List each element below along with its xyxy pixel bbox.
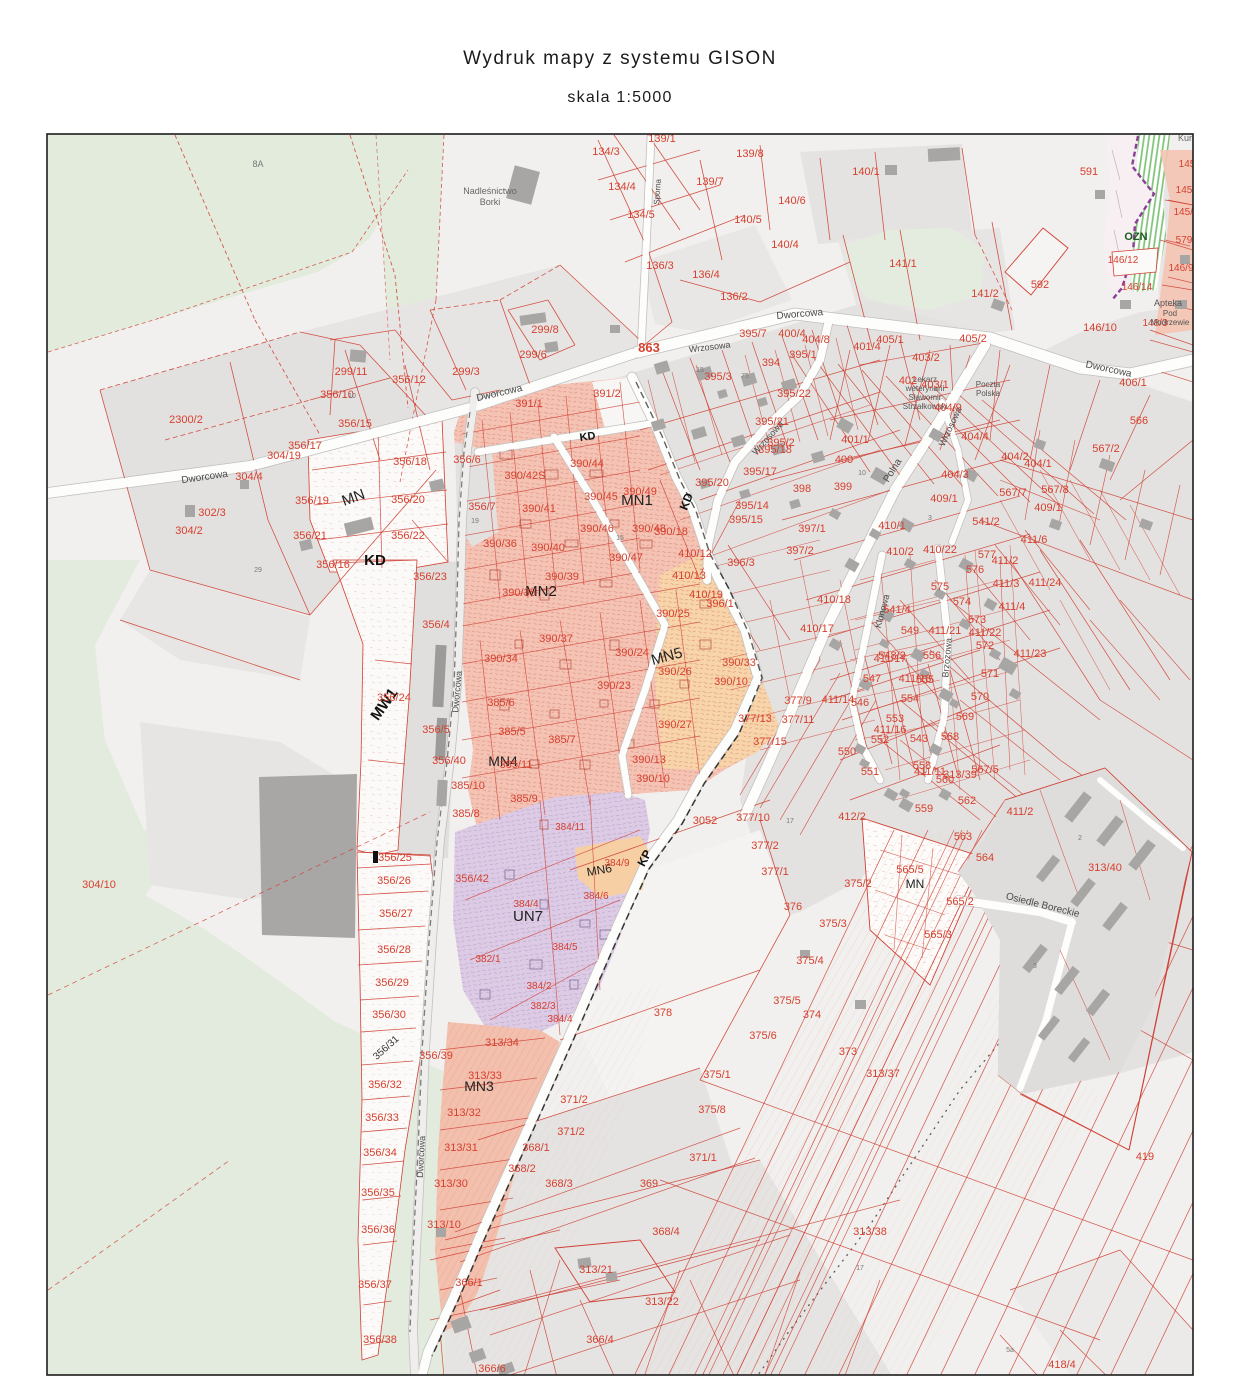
svg-text:375/5: 375/5 xyxy=(773,995,801,1007)
svg-text:402: 402 xyxy=(899,375,917,387)
svg-text:567/2: 567/2 xyxy=(1092,443,1120,455)
svg-text:377/9: 377/9 xyxy=(784,695,812,707)
svg-text:567/7: 567/7 xyxy=(999,487,1027,499)
svg-text:438: 438 xyxy=(1099,1374,1117,1386)
svg-text:406/1: 406/1 xyxy=(1119,377,1147,389)
svg-text:395/14: 395/14 xyxy=(735,500,769,512)
svg-text:313/33: 313/33 xyxy=(468,1070,502,1082)
svg-text:411/11: 411/11 xyxy=(914,766,946,778)
svg-text:356/17: 356/17 xyxy=(288,440,322,452)
svg-text:390/13: 390/13 xyxy=(632,754,666,766)
svg-text:313/31: 313/31 xyxy=(444,1142,478,1154)
svg-text:390/45: 390/45 xyxy=(584,491,618,503)
svg-text:Sławomir: Sławomir xyxy=(909,393,942,402)
svg-text:139/8: 139/8 xyxy=(736,148,764,160)
svg-text:19: 19 xyxy=(471,518,479,525)
svg-text:3052: 3052 xyxy=(693,815,717,827)
svg-text:29: 29 xyxy=(254,567,262,574)
svg-text:390/44: 390/44 xyxy=(570,458,604,470)
svg-text:563: 563 xyxy=(954,831,972,843)
svg-text:412/2: 412/2 xyxy=(838,811,866,823)
svg-text:390/10: 390/10 xyxy=(636,773,670,785)
svg-text:366/6: 366/6 xyxy=(478,1363,506,1375)
svg-text:384/4: 384/4 xyxy=(547,1014,572,1025)
svg-text:410/13: 410/13 xyxy=(672,570,706,582)
svg-text:401/1: 401/1 xyxy=(841,434,869,446)
svg-text:366/1: 366/1 xyxy=(455,1277,483,1289)
svg-text:384/2: 384/2 xyxy=(526,981,551,992)
svg-text:313/22: 313/22 xyxy=(645,1296,679,1308)
svg-text:390/49: 390/49 xyxy=(623,486,657,498)
svg-text:356/12: 356/12 xyxy=(392,374,426,386)
svg-text:385/8: 385/8 xyxy=(452,808,480,820)
svg-text:5a: 5a xyxy=(1006,1347,1014,1354)
svg-text:Pod: Pod xyxy=(1163,309,1177,318)
svg-text:KD: KD xyxy=(364,552,386,569)
svg-text:390/37: 390/37 xyxy=(539,633,573,645)
svg-text:395/3: 395/3 xyxy=(704,371,732,383)
svg-text:10: 10 xyxy=(858,470,866,477)
svg-text:375/1: 375/1 xyxy=(703,1069,731,1081)
svg-text:549: 549 xyxy=(901,625,919,637)
svg-text:565/2: 565/2 xyxy=(946,896,974,908)
svg-text:356/6: 356/6 xyxy=(453,454,481,466)
svg-text:313/39: 313/39 xyxy=(943,769,977,781)
svg-text:411/17: 411/17 xyxy=(874,653,907,665)
svg-text:572: 572 xyxy=(976,640,994,652)
svg-text:356/35: 356/35 xyxy=(361,1187,395,1199)
svg-text:411/14: 411/14 xyxy=(822,694,855,706)
svg-text:356/21: 356/21 xyxy=(293,530,327,542)
svg-text:411/6: 411/6 xyxy=(1021,534,1048,546)
svg-text:356/4: 356/4 xyxy=(422,619,450,631)
svg-text:411/18: 411/18 xyxy=(899,673,932,685)
svg-text:390/33: 390/33 xyxy=(722,657,756,669)
svg-text:418/4: 418/4 xyxy=(1048,1359,1076,1371)
svg-text:562: 562 xyxy=(958,795,976,807)
svg-text:371/1: 371/1 xyxy=(689,1152,717,1164)
svg-text:405/2: 405/2 xyxy=(959,333,987,345)
svg-text:411/23: 411/23 xyxy=(1014,648,1047,660)
svg-text:410/1: 410/1 xyxy=(878,520,906,532)
svg-text:313/38: 313/38 xyxy=(853,1226,887,1238)
svg-text:MN: MN xyxy=(906,877,925,891)
svg-text:136/3: 136/3 xyxy=(646,260,674,272)
svg-text:390/36: 390/36 xyxy=(483,538,517,550)
svg-text:356/18: 356/18 xyxy=(393,456,427,468)
svg-text:375/4: 375/4 xyxy=(796,955,824,967)
svg-text:15: 15 xyxy=(696,367,704,374)
svg-text:356/23: 356/23 xyxy=(413,571,447,583)
svg-text:579: 579 xyxy=(1176,235,1193,246)
svg-text:368/2: 368/2 xyxy=(508,1163,536,1175)
svg-text:404/8: 404/8 xyxy=(802,334,830,346)
svg-text:146/12: 146/12 xyxy=(1108,255,1139,266)
svg-text:356/27: 356/27 xyxy=(379,908,413,920)
svg-text:391/1: 391/1 xyxy=(515,398,543,410)
svg-text:146/10: 146/10 xyxy=(1083,322,1117,334)
svg-text:140/6: 140/6 xyxy=(778,195,806,207)
svg-text:411/2: 411/2 xyxy=(992,555,1019,567)
svg-text:2300/2: 2300/2 xyxy=(169,414,203,426)
svg-text:395/17: 395/17 xyxy=(743,466,777,478)
svg-text:410/18: 410/18 xyxy=(817,594,851,606)
svg-text:410/12: 410/12 xyxy=(678,548,712,560)
svg-text:313/40: 313/40 xyxy=(1088,862,1122,874)
svg-text:385/11: 385/11 xyxy=(500,759,533,771)
svg-text:384/9: 384/9 xyxy=(604,858,629,869)
svg-text:409/1: 409/1 xyxy=(1034,502,1062,514)
svg-text:Borki: Borki xyxy=(480,197,501,207)
svg-text:136/4: 136/4 xyxy=(692,269,720,281)
svg-text:390/18: 390/18 xyxy=(654,526,688,538)
svg-text:384/4: 384/4 xyxy=(513,899,538,910)
svg-text:Apteka: Apteka xyxy=(1154,298,1182,308)
svg-text:543: 543 xyxy=(910,733,928,745)
svg-text:140/4: 140/4 xyxy=(771,239,799,251)
svg-text:863: 863 xyxy=(638,340,660,355)
svg-text:356/30: 356/30 xyxy=(372,1009,406,1021)
svg-text:8A: 8A xyxy=(252,159,263,169)
svg-text:384/5: 384/5 xyxy=(552,942,577,953)
svg-text:411/16: 411/16 xyxy=(874,724,907,736)
svg-text:559: 559 xyxy=(915,803,933,815)
svg-text:356/24: 356/24 xyxy=(377,692,411,704)
svg-text:397/2: 397/2 xyxy=(786,545,814,557)
svg-text:Modrzewie: Modrzewie xyxy=(1151,318,1190,327)
svg-text:395/22: 395/22 xyxy=(777,388,811,400)
svg-text:356/32: 356/32 xyxy=(368,1079,402,1091)
svg-text:571: 571 xyxy=(981,668,999,680)
svg-text:564: 564 xyxy=(976,852,994,864)
svg-text:304/10: 304/10 xyxy=(82,879,116,891)
svg-text:302/3: 302/3 xyxy=(198,507,226,519)
svg-text:547: 547 xyxy=(863,673,881,685)
svg-text:299/11: 299/11 xyxy=(335,366,368,378)
svg-text:541/4: 541/4 xyxy=(883,604,911,616)
svg-text:377/10: 377/10 xyxy=(736,812,770,824)
svg-text:569: 569 xyxy=(956,711,974,723)
svg-text:369: 369 xyxy=(640,1178,658,1190)
svg-text:368/3: 368/3 xyxy=(545,1178,573,1190)
svg-text:146/14: 146/14 xyxy=(1122,282,1153,293)
svg-text:10: 10 xyxy=(348,393,356,400)
svg-text:396/3: 396/3 xyxy=(727,557,755,569)
svg-text:394: 394 xyxy=(762,357,780,369)
svg-text:399: 399 xyxy=(834,481,852,493)
svg-text:134/5: 134/5 xyxy=(627,209,655,221)
svg-text:299/3: 299/3 xyxy=(452,366,480,378)
svg-text:313/10: 313/10 xyxy=(427,1219,461,1231)
svg-text:565/5: 565/5 xyxy=(896,864,924,876)
svg-text:409/1: 409/1 xyxy=(930,493,958,505)
svg-text:368/1: 368/1 xyxy=(522,1142,550,1154)
svg-text:313/34: 313/34 xyxy=(485,1037,519,1049)
svg-text:356/37: 356/37 xyxy=(358,1279,392,1291)
svg-text:299/6: 299/6 xyxy=(519,349,547,361)
svg-text:378: 378 xyxy=(654,1007,672,1019)
svg-text:304/2: 304/2 xyxy=(175,525,203,537)
svg-text:410/22: 410/22 xyxy=(923,544,957,556)
svg-text:2: 2 xyxy=(1078,835,1082,842)
svg-text:KD: KD xyxy=(579,430,596,444)
svg-text:566: 566 xyxy=(1130,415,1148,427)
svg-text:371/2: 371/2 xyxy=(557,1126,585,1138)
svg-text:404/1: 404/1 xyxy=(1024,458,1052,470)
svg-text:395/15: 395/15 xyxy=(729,514,763,526)
svg-text:299/8: 299/8 xyxy=(531,324,559,336)
svg-text:401/4: 401/4 xyxy=(853,341,881,353)
svg-text:404/9: 404/9 xyxy=(934,402,962,414)
svg-text:384/11: 384/11 xyxy=(555,822,585,833)
svg-text:366/4: 366/4 xyxy=(586,1334,614,1346)
svg-text:390/34: 390/34 xyxy=(484,653,518,665)
svg-text:356/38: 356/38 xyxy=(363,1334,397,1346)
svg-text:376: 376 xyxy=(784,901,802,913)
svg-text:375/3: 375/3 xyxy=(819,918,847,930)
svg-text:550: 550 xyxy=(838,746,856,758)
svg-text:568: 568 xyxy=(941,731,959,743)
svg-text:Poczta: Poczta xyxy=(976,380,1001,389)
svg-text:356/5: 356/5 xyxy=(422,724,450,736)
svg-text:574: 574 xyxy=(953,596,971,608)
svg-text:567/8: 567/8 xyxy=(1041,484,1069,496)
svg-text:390/41: 390/41 xyxy=(522,503,556,515)
svg-text:395/7: 395/7 xyxy=(739,328,767,340)
svg-text:411/22: 411/22 xyxy=(969,627,1002,639)
svg-text:410/19: 410/19 xyxy=(689,589,723,601)
svg-text:385/10: 385/10 xyxy=(451,780,485,792)
svg-text:404/3: 404/3 xyxy=(941,469,969,481)
svg-text:403/2: 403/2 xyxy=(912,352,940,364)
svg-text:313/32: 313/32 xyxy=(447,1107,481,1119)
svg-text:356/42: 356/42 xyxy=(455,873,489,885)
svg-text:411/24: 411/24 xyxy=(1029,577,1062,589)
svg-text:390/35: 390/35 xyxy=(502,587,536,599)
svg-text:371/2: 371/2 xyxy=(560,1094,588,1106)
svg-text:411/4: 411/4 xyxy=(999,601,1026,613)
svg-text:140/1: 140/1 xyxy=(852,166,880,178)
svg-text:313/21: 313/21 xyxy=(579,1264,613,1276)
svg-text:395/21: 395/21 xyxy=(755,416,789,428)
svg-text:145: 145 xyxy=(1176,185,1193,196)
svg-text:410/2: 410/2 xyxy=(886,546,914,558)
svg-text:313/37: 313/37 xyxy=(866,1068,900,1080)
svg-text:140/5: 140/5 xyxy=(734,214,762,226)
svg-text:398: 398 xyxy=(793,483,811,495)
svg-text:146/9: 146/9 xyxy=(1168,263,1193,274)
svg-text:384/6: 384/6 xyxy=(583,891,608,902)
svg-text:403/1: 403/1 xyxy=(921,379,949,391)
svg-text:356/26: 356/26 xyxy=(377,875,411,887)
svg-text:3: 3 xyxy=(928,515,932,522)
svg-text:139/7: 139/7 xyxy=(696,176,724,188)
svg-text:375/6: 375/6 xyxy=(749,1030,777,1042)
svg-text:134/4: 134/4 xyxy=(608,181,636,193)
svg-text:411/2: 411/2 xyxy=(1007,806,1034,818)
svg-text:404/4: 404/4 xyxy=(961,431,989,443)
svg-text:570: 570 xyxy=(971,691,989,703)
svg-text:356/36: 356/36 xyxy=(361,1224,395,1236)
svg-text:390/27: 390/27 xyxy=(658,719,692,731)
svg-text:Polska: Polska xyxy=(976,389,1001,398)
svg-text:3: 3 xyxy=(1033,963,1037,970)
svg-text:134/3: 134/3 xyxy=(592,146,620,158)
svg-text:591: 591 xyxy=(1080,166,1098,178)
svg-text:390/39: 390/39 xyxy=(545,571,579,583)
svg-text:356/22: 356/22 xyxy=(391,530,425,542)
svg-text:390/40: 390/40 xyxy=(531,542,565,554)
svg-text:UN7: UN7 xyxy=(513,908,543,925)
svg-text:375/2: 375/2 xyxy=(844,878,872,890)
svg-text:395/1: 395/1 xyxy=(789,349,817,361)
svg-text:313/30: 313/30 xyxy=(434,1178,468,1190)
svg-text:551: 551 xyxy=(861,766,879,778)
svg-text:411/21: 411/21 xyxy=(929,625,962,637)
svg-text:395/18: 395/18 xyxy=(758,444,792,456)
svg-text:541/2: 541/2 xyxy=(972,516,1000,528)
svg-text:75: 75 xyxy=(741,373,749,380)
svg-text:145/9: 145/9 xyxy=(1173,207,1198,218)
svg-text:17: 17 xyxy=(856,1265,864,1272)
svg-text:356/15: 356/15 xyxy=(338,418,372,430)
svg-text:Nadleśnictwo: Nadleśnictwo xyxy=(463,186,517,196)
svg-text:356/40: 356/40 xyxy=(432,755,466,767)
svg-text:373: 373 xyxy=(839,1046,857,1058)
svg-text:419: 419 xyxy=(1136,1151,1154,1163)
svg-text:377/13: 377/13 xyxy=(738,713,772,725)
svg-text:356/34: 356/34 xyxy=(363,1147,397,1159)
svg-text:356/39: 356/39 xyxy=(419,1050,453,1062)
svg-text:356/29: 356/29 xyxy=(375,977,409,989)
svg-text:385/7: 385/7 xyxy=(548,734,576,746)
svg-text:390/10: 390/10 xyxy=(714,676,748,688)
svg-text:565/3: 565/3 xyxy=(924,929,952,941)
svg-text:592: 592 xyxy=(1031,279,1049,291)
svg-text:395/20: 395/20 xyxy=(695,477,729,489)
svg-text:385/6: 385/6 xyxy=(487,697,515,709)
svg-text:390/25: 390/25 xyxy=(656,608,690,620)
svg-text:368/4: 368/4 xyxy=(652,1226,680,1238)
svg-text:304/4: 304/4 xyxy=(235,471,263,483)
svg-text:385/5: 385/5 xyxy=(498,726,526,738)
svg-text:391/2: 391/2 xyxy=(593,388,621,400)
svg-text:356/16: 356/16 xyxy=(316,559,350,571)
svg-text:390/46: 390/46 xyxy=(580,523,614,535)
svg-text:375/8: 375/8 xyxy=(698,1104,726,1116)
svg-text:390/23: 390/23 xyxy=(597,680,631,692)
svg-text:374: 374 xyxy=(803,1009,821,1021)
svg-text:377/2: 377/2 xyxy=(751,840,779,852)
svg-text:356/25: 356/25 xyxy=(378,852,412,864)
svg-text:15: 15 xyxy=(616,535,624,542)
svg-text:385/9: 385/9 xyxy=(510,793,538,805)
svg-text:356/19: 356/19 xyxy=(295,495,329,507)
svg-text:136/2: 136/2 xyxy=(720,291,748,303)
svg-text:400: 400 xyxy=(835,454,853,466)
svg-text:356/28: 356/28 xyxy=(377,944,411,956)
svg-text:556: 556 xyxy=(923,650,941,662)
svg-text:377/15: 377/15 xyxy=(753,736,787,748)
svg-text:382/1: 382/1 xyxy=(475,954,500,965)
svg-text:575: 575 xyxy=(931,581,949,593)
svg-text:410/17: 410/17 xyxy=(800,623,834,635)
svg-text:Sporna: Sporna xyxy=(652,178,663,205)
svg-text:390/24: 390/24 xyxy=(615,647,649,659)
svg-text:390/47: 390/47 xyxy=(609,552,643,564)
svg-text:576: 576 xyxy=(966,564,984,576)
svg-text:141/2: 141/2 xyxy=(971,288,999,300)
svg-text:141/1: 141/1 xyxy=(889,258,917,270)
svg-text:OZN: OZN xyxy=(1124,231,1147,243)
svg-text:377/1: 377/1 xyxy=(761,866,789,878)
svg-text:397/1: 397/1 xyxy=(798,523,826,535)
svg-text:573: 573 xyxy=(968,614,986,626)
svg-text:390/42S: 390/42S xyxy=(505,470,546,482)
svg-text:390/26: 390/26 xyxy=(658,666,692,678)
svg-text:554: 554 xyxy=(901,693,919,705)
svg-text:356/7: 356/7 xyxy=(468,501,496,513)
svg-text:356/33: 356/33 xyxy=(365,1112,399,1124)
svg-text:356/20: 356/20 xyxy=(391,494,425,506)
svg-text:377/11: 377/11 xyxy=(782,714,815,726)
svg-text:382/3: 382/3 xyxy=(530,1001,555,1012)
svg-text:17: 17 xyxy=(786,818,794,825)
svg-text:411/3: 411/3 xyxy=(993,578,1020,590)
